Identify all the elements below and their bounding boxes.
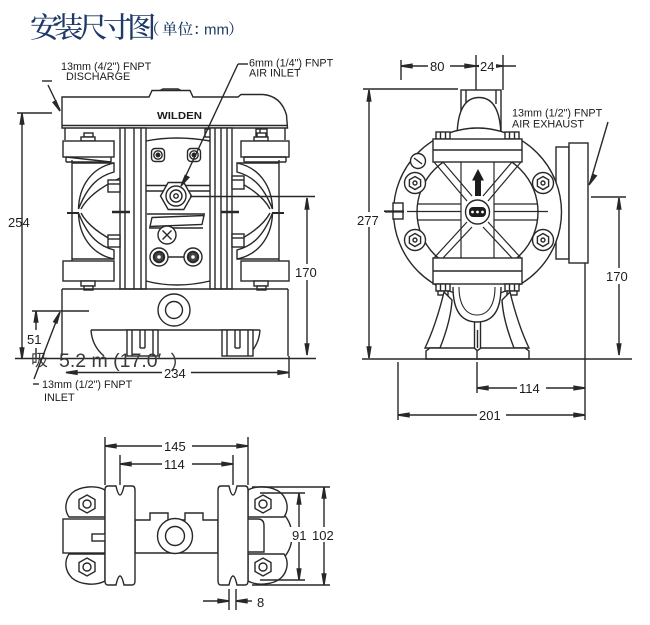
svg-text:277: 277 [357, 213, 379, 228]
svg-text:80: 80 [430, 59, 444, 74]
svg-text:WILDEN: WILDEN [157, 110, 202, 122]
svg-text:254: 254 [8, 215, 30, 230]
svg-text:AIR INLET: AIR INLET [249, 68, 301, 80]
svg-text:91: 91 [292, 528, 306, 543]
svg-text:170: 170 [606, 269, 628, 284]
svg-text:8: 8 [257, 595, 264, 610]
svg-text:201: 201 [479, 408, 501, 423]
svg-text:AIR EXHAUST: AIR EXHAUST [512, 119, 584, 131]
svg-text:5.2 m (17.0′: 5.2 m (17.0′ [59, 350, 162, 372]
svg-text:DISCHARGE: DISCHARGE [66, 71, 130, 83]
svg-text:13mm (1/2") FNPT: 13mm (1/2") FNPT [42, 379, 133, 391]
svg-text:mm: mm [204, 22, 229, 39]
svg-text:114: 114 [519, 381, 540, 396]
svg-text:51: 51 [27, 332, 41, 347]
svg-text:114: 114 [164, 457, 185, 472]
svg-text:INLET: INLET [44, 392, 75, 404]
svg-text:24: 24 [480, 59, 494, 74]
svg-text:102: 102 [312, 528, 334, 543]
svg-text:145: 145 [164, 439, 186, 454]
svg-text:）: ） [170, 352, 190, 374]
svg-text:170: 170 [295, 265, 317, 280]
